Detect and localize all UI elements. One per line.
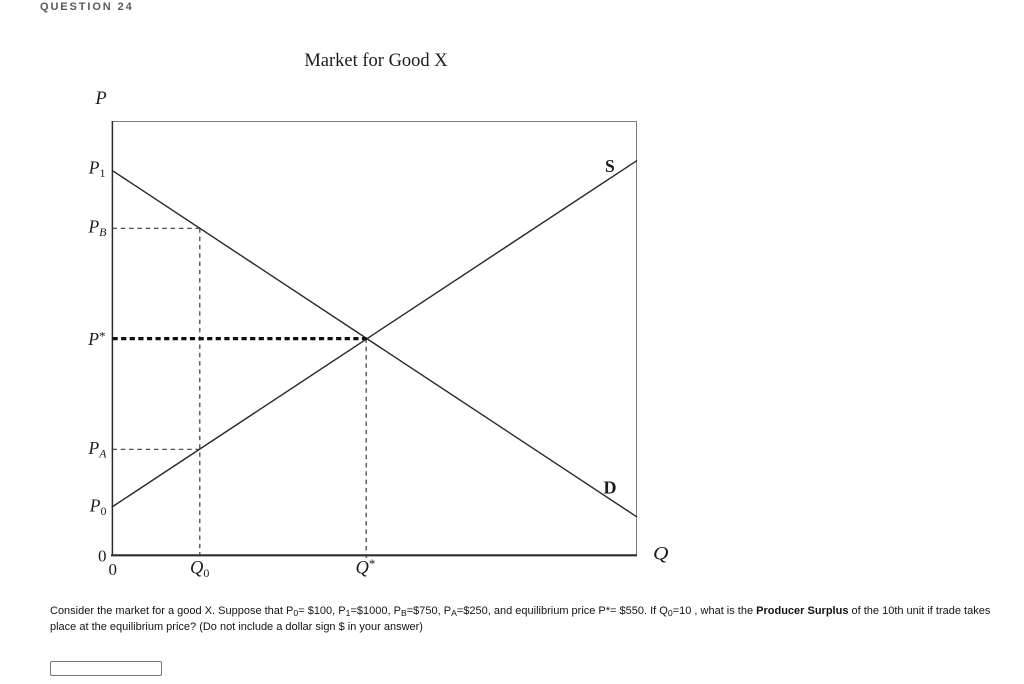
svg-text:0: 0 [109, 560, 118, 579]
svg-text:PB: PB [87, 217, 107, 240]
svg-text:Q: Q [653, 544, 669, 565]
svg-text:Q0: Q0 [190, 559, 209, 581]
svg-text:0: 0 [98, 547, 107, 566]
svg-text:P: P [94, 89, 106, 109]
svg-text:S: S [605, 156, 615, 176]
svg-text:D: D [604, 478, 617, 498]
svg-text:P0: P0 [89, 496, 107, 519]
svg-text:Market for Good X: Market for Good X [304, 51, 448, 71]
svg-text:Q*: Q* [356, 556, 376, 579]
svg-text:P1: P1 [88, 158, 106, 181]
svg-text:PA: PA [87, 438, 107, 461]
svg-text:P*: P* [87, 329, 105, 350]
